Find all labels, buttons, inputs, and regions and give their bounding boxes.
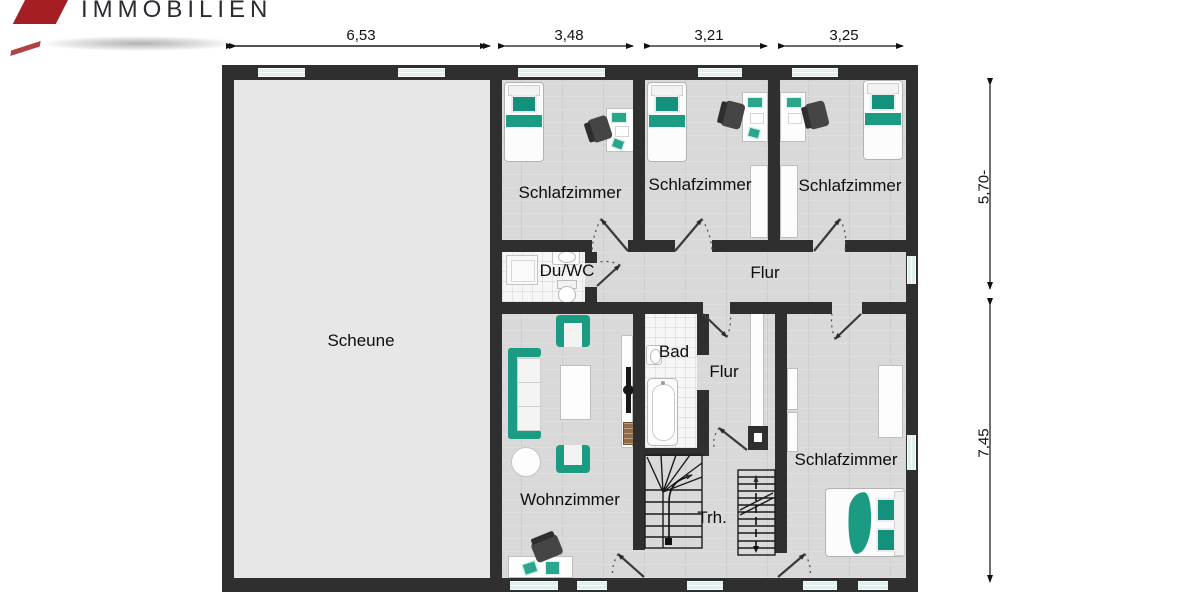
hall-closet — [750, 310, 764, 428]
armchair-icon — [556, 445, 590, 473]
wall-schlafzimmer-left — [775, 302, 787, 553]
wall-bad-right — [697, 314, 709, 355]
logo-shadow — [42, 36, 237, 51]
wall-below-bedrooms — [628, 240, 675, 252]
wall-bedroom-1-2 — [633, 80, 645, 252]
window — [698, 68, 742, 77]
wall-below-bedrooms — [712, 240, 813, 252]
shower-icon — [506, 255, 538, 285]
window — [792, 68, 838, 77]
bathtub-icon — [647, 378, 678, 446]
room-label-treppenhaus: Trh. — [697, 508, 727, 528]
window — [258, 68, 305, 77]
brand-logo-stripe-icon — [10, 41, 40, 56]
bed-icon — [647, 82, 687, 162]
room-label-schlafzimmer-1: Schlafzimmer — [519, 183, 622, 203]
dimension-top-4: 3,25 — [829, 27, 858, 44]
wall-duwc-right — [585, 287, 597, 302]
armchair-icon — [556, 315, 590, 347]
room-label-schlafzimmer-3: Schlafzimmer — [799, 176, 902, 196]
window — [518, 68, 605, 77]
window — [858, 581, 888, 590]
wall-below-flur — [862, 302, 906, 314]
room-label-bad: Bad — [659, 342, 689, 362]
wall-bad-bottom — [633, 448, 709, 456]
wardrobe — [750, 165, 768, 238]
wardrobe — [878, 365, 903, 438]
window — [398, 68, 445, 77]
window — [577, 581, 607, 590]
brand-logo-icon — [13, 0, 68, 24]
desk-icon — [742, 92, 768, 142]
dimension-top-1: 6,53 — [346, 27, 375, 44]
room-label-flur-lower: Flur — [709, 362, 738, 382]
room-label-du-wc: Du/WC — [540, 261, 595, 281]
window — [907, 435, 916, 470]
floor-plan: Scheune Schlafzimmer Schlafzimmer Schlaf… — [222, 65, 918, 592]
room-label-scheune: Scheune — [327, 331, 394, 351]
dimension-top-2: 3,48 — [554, 27, 583, 44]
chimney — [748, 426, 768, 450]
room-label-schlafzimmer-4: Schlafzimmer — [795, 450, 898, 470]
coffee-table-icon — [560, 365, 591, 420]
wardrobe — [787, 412, 798, 452]
side-table-icon — [511, 447, 541, 477]
floor-scheune — [232, 80, 502, 578]
wardrobe — [787, 368, 798, 410]
bed-icon — [504, 82, 544, 162]
bed-pillow — [511, 95, 537, 113]
wall-below-flur — [502, 302, 703, 314]
wall-bad-right — [697, 390, 709, 456]
wall-scheune-right — [490, 80, 502, 578]
window — [510, 581, 558, 590]
wall-outer-right — [906, 65, 918, 592]
wall-below-bedrooms — [502, 240, 592, 252]
double-bed-icon — [825, 488, 905, 557]
window — [907, 256, 916, 284]
wall-bedroom-2-3 — [768, 80, 780, 252]
bed-pillow — [876, 528, 896, 552]
wall-outer-left — [222, 65, 234, 592]
window — [687, 581, 723, 590]
bed-icon — [863, 80, 903, 160]
room-label-flur-upper: Flur — [750, 263, 779, 283]
bed-blanket — [506, 115, 542, 127]
room-label-schlafzimmer-2: Schlafzimmer — [649, 175, 752, 195]
desk-pad — [611, 137, 626, 151]
bed-blanket — [846, 491, 873, 554]
wall-wohnzimmer-right — [633, 302, 645, 550]
dimension-right-1: 5,70- — [976, 170, 993, 204]
toilet-icon — [555, 280, 577, 302]
desk-pad — [611, 112, 627, 123]
desk-paper — [615, 126, 629, 137]
room-label-wohnzimmer: Wohnzimmer — [520, 490, 620, 510]
floor-plan-page: IMMOBILIEN 6,53 3,48 3,21 3,25 5,70- 7,4… — [0, 0, 1200, 600]
brand-name: IMMOBILIEN — [81, 0, 272, 24]
dimension-right-2: 7,45 — [976, 428, 993, 457]
dimension-top-3: 3,21 — [694, 27, 723, 44]
window — [803, 581, 837, 590]
wall-below-bedrooms — [845, 240, 906, 252]
wardrobe — [780, 165, 798, 238]
sofa-icon — [508, 348, 541, 439]
bed-pillow — [876, 498, 896, 522]
